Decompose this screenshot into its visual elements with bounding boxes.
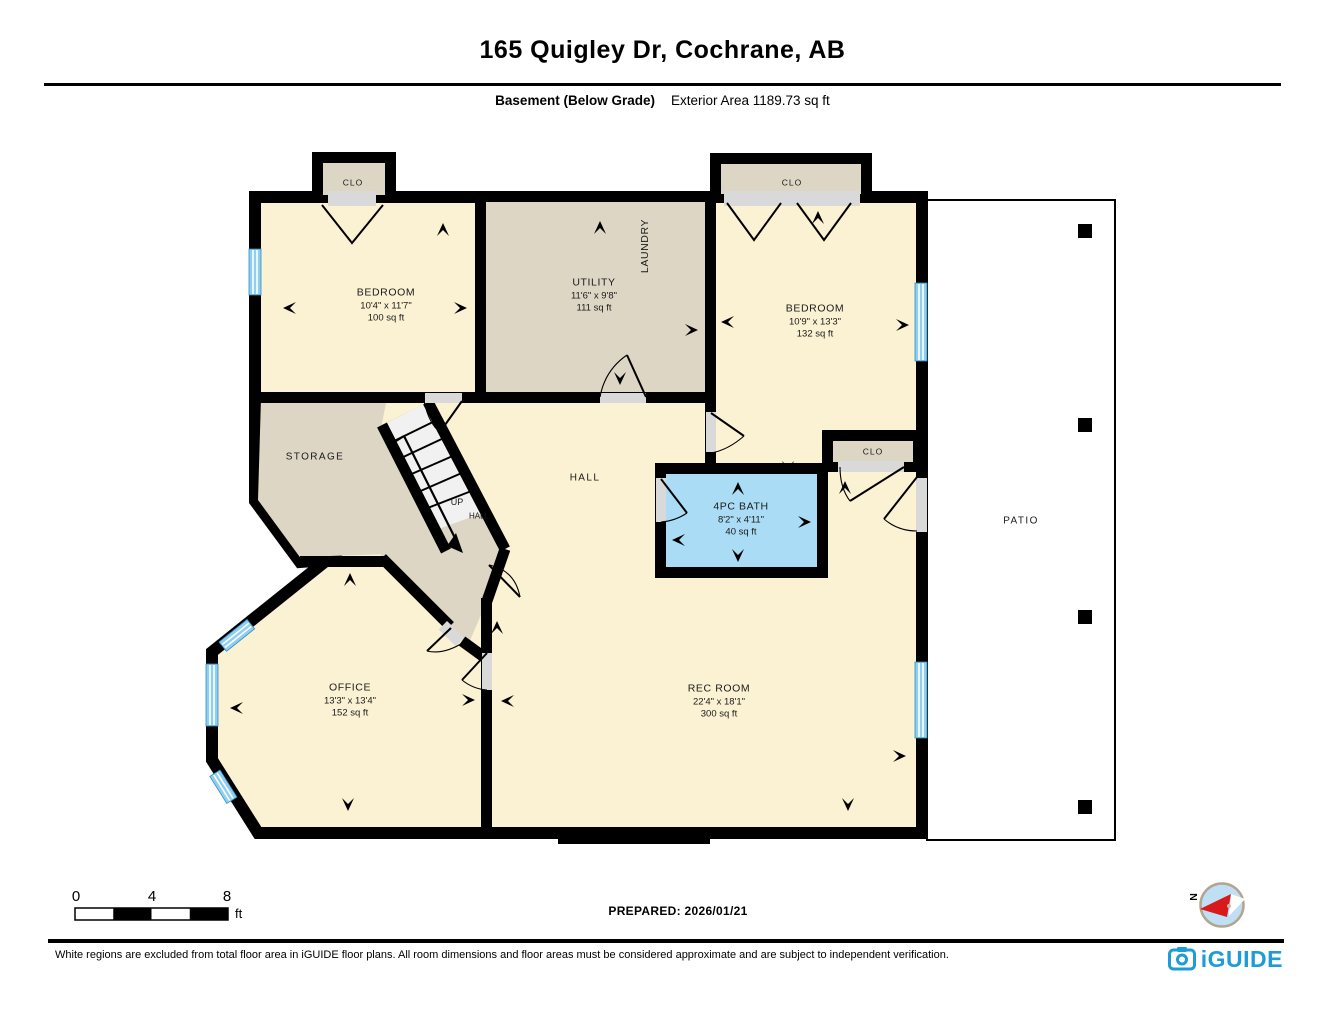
patio-label: PATIO: [1003, 514, 1039, 527]
scale-tick-4: 4: [148, 888, 156, 905]
floor-label: Basement (Below Grade): [495, 93, 655, 108]
footer-divider: [48, 939, 1284, 943]
scale-tick-8: 8: [223, 888, 231, 905]
room-label-hall: HALL: [570, 471, 601, 484]
stair-up-label: UP: [451, 497, 464, 509]
room-label-laundry: LAUNDRY: [639, 219, 653, 273]
room-label-bedroom1: BEDROOM 10'4" x 11'7" 100 sq ft: [357, 287, 415, 326]
north-label: N: [1188, 893, 1200, 901]
iguide-wordmark: iGUIDE: [1201, 946, 1283, 973]
room-label-utility: UTILITY 11'6" x 9'8" 111 sq ft: [571, 277, 617, 316]
page-title: 165 Quigley Dr, Cochrane, AB: [0, 36, 1325, 65]
iguide-logo: iGUIDE: [1167, 945, 1283, 973]
room-label-bedroom2: BEDROOM 10'9" x 13'3" 132 sq ft: [786, 303, 844, 342]
iguide-camera-icon: [1167, 945, 1197, 973]
room-label-rec-room: REC ROOM 22'4" x 18'1" 300 sq ft: [688, 683, 751, 722]
stair-hall-label: HALL: [469, 512, 489, 523]
room-label-storage: STORAGE: [286, 450, 345, 463]
room-label-office: OFFICE 13'3" x 13'4" 152 sq ft: [324, 682, 376, 721]
floor-plan-drawing: [0, 0, 1325, 1024]
footer-disclaimer: White regions are excluded from total fl…: [55, 949, 949, 961]
scale-unit-label: ft: [235, 906, 242, 921]
room-label-bath: 4PC BATH 8'2" x 4'11" 40 sq ft: [713, 501, 768, 540]
scale-tick-0: 0: [72, 888, 80, 905]
prepared-date: PREPARED: 2026/01/21: [608, 904, 747, 918]
closet2-label: CLO: [782, 177, 802, 188]
floor-plan-page: 165 Quigley Dr, Cochrane, AB Basement (B…: [0, 0, 1325, 1024]
title-divider: [44, 83, 1281, 86]
closet3-label: CLO: [863, 446, 883, 457]
closet1-label: CLO: [343, 177, 363, 188]
floor-subtitle: Basement (Below Grade) Exterior Area 118…: [0, 93, 1325, 108]
scale-bar-graphic: [75, 908, 228, 920]
exterior-area-label: Exterior Area 1189.73 sq ft: [671, 93, 830, 108]
compass-icon: [1200, 884, 1245, 927]
